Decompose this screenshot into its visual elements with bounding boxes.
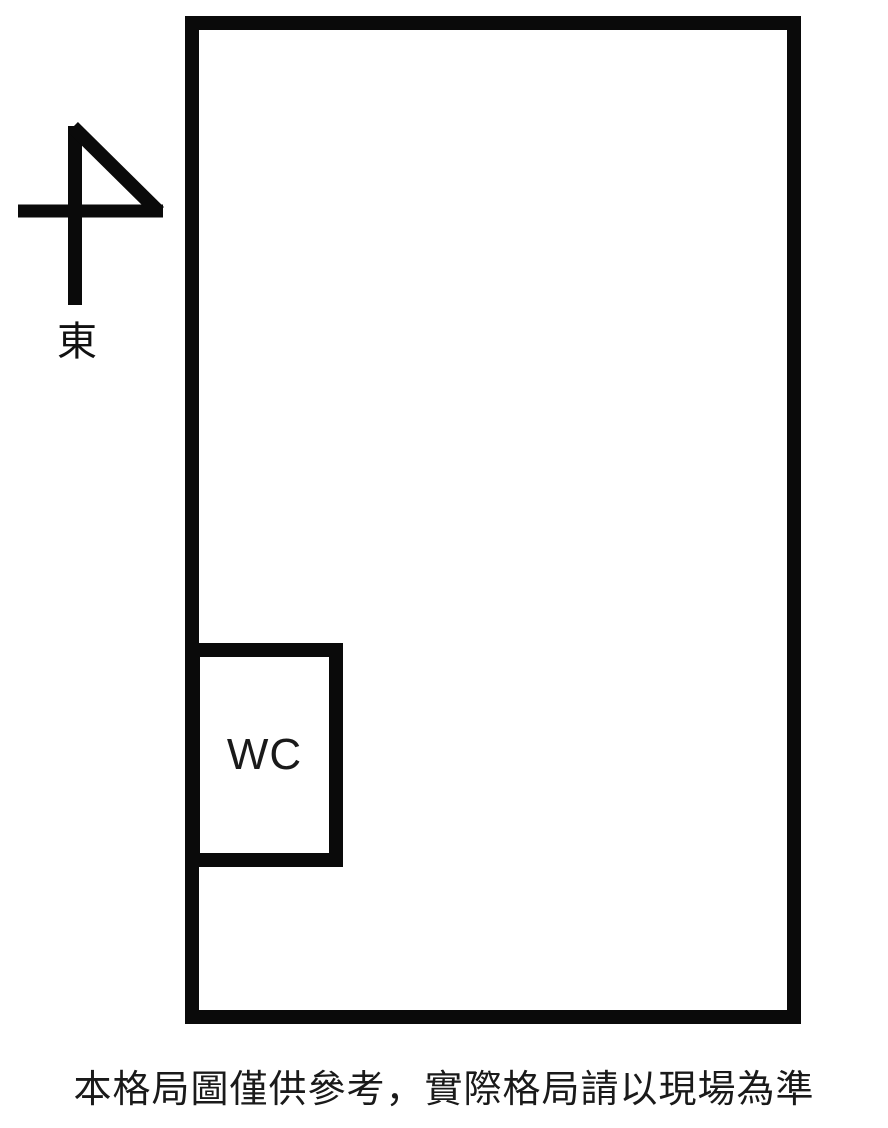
wc-room-outline: WC — [186, 643, 343, 867]
wc-room-label: WC — [227, 733, 302, 777]
floor-plan-canvas: 東 WC 本格局圖僅供參考，實際格局請以現場為準 — [0, 0, 888, 1128]
main-room-outline — [185, 16, 801, 1024]
east-compass-icon — [8, 117, 174, 313]
disclaimer-caption: 本格局圖僅供參考，實際格局請以現場為準 — [0, 1058, 888, 1113]
compass-direction-label: 東 — [57, 318, 97, 366]
